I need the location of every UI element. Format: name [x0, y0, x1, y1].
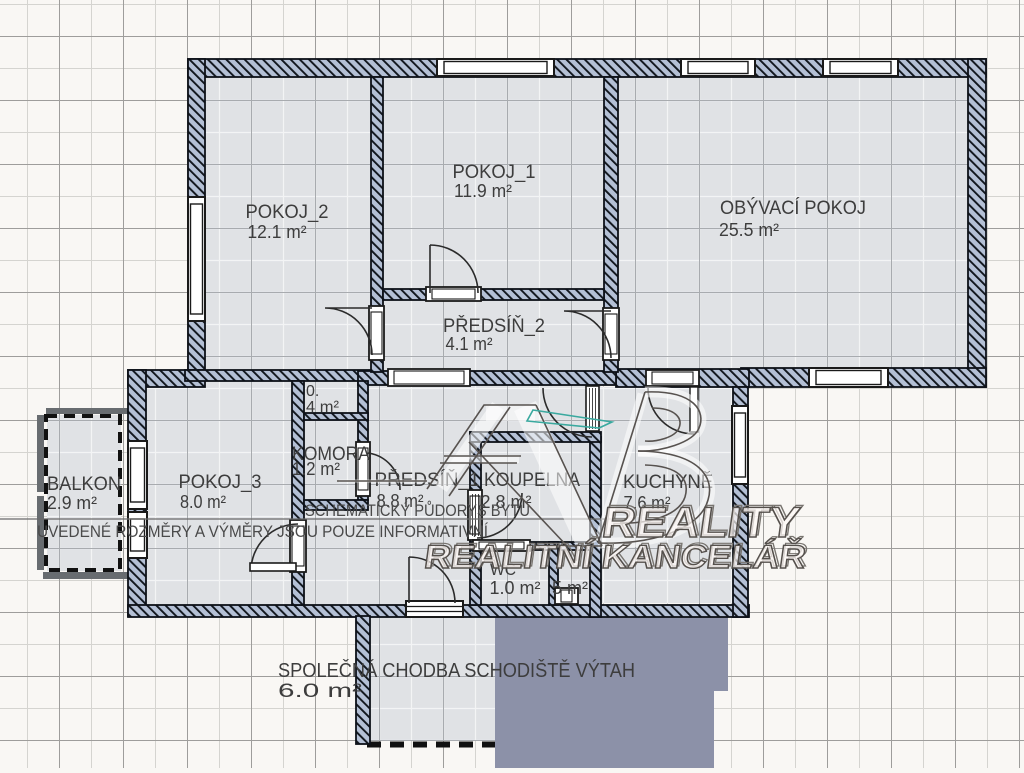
- svg-text:25.5 m²: 25.5 m²: [719, 220, 779, 240]
- svg-text:POKOJ_3: POKOJ_3: [179, 471, 262, 493]
- svg-text:12.1 m²: 12.1 m²: [248, 222, 307, 242]
- svg-text:SCHEMATICKÝ PŮDORYS BYTU: SCHEMATICKÝ PŮDORYS BYTU: [305, 501, 530, 520]
- svg-text:BALKON: BALKON: [47, 473, 121, 495]
- svg-text:1.2 m²: 1.2 m²: [292, 459, 340, 479]
- svg-text:4 m²: 4 m²: [306, 399, 340, 416]
- svg-text:UVEDENÉ ROZMĚRY A VÝMĚRY JSOU: UVEDENÉ ROZMĚRY A VÝMĚRY JSOU POUZE INFO…: [37, 522, 488, 541]
- svg-text:POKOJ_1: POKOJ_1: [453, 161, 536, 183]
- svg-text:6.0 m²: 6.0 m²: [278, 681, 362, 702]
- svg-text:OBÝVACÍ POKOJ: OBÝVACÍ POKOJ: [720, 196, 866, 219]
- svg-text:1.0 m²: 1.0 m²: [490, 578, 541, 598]
- svg-text:0.: 0.: [306, 383, 319, 400]
- svg-text:2.9 m²: 2.9 m²: [47, 493, 97, 513]
- svg-text:8.0 m²: 8.0 m²: [180, 492, 226, 512]
- svg-text:SPOLEČNÁ CHODBA SCHODIŠTĚ VÝTA: SPOLEČNÁ CHODBA SCHODIŠTĚ VÝTAH: [278, 659, 635, 682]
- svg-text:4.1 m²: 4.1 m²: [446, 334, 493, 354]
- svg-text:5 m²: 5 m²: [552, 578, 588, 598]
- svg-text:REALITNÍ KANCELÁŘ: REALITNÍ KANCELÁŘ: [422, 538, 808, 576]
- svg-text:11.9 m²: 11.9 m²: [454, 181, 512, 201]
- svg-text:POKOJ_2: POKOJ_2: [246, 201, 329, 223]
